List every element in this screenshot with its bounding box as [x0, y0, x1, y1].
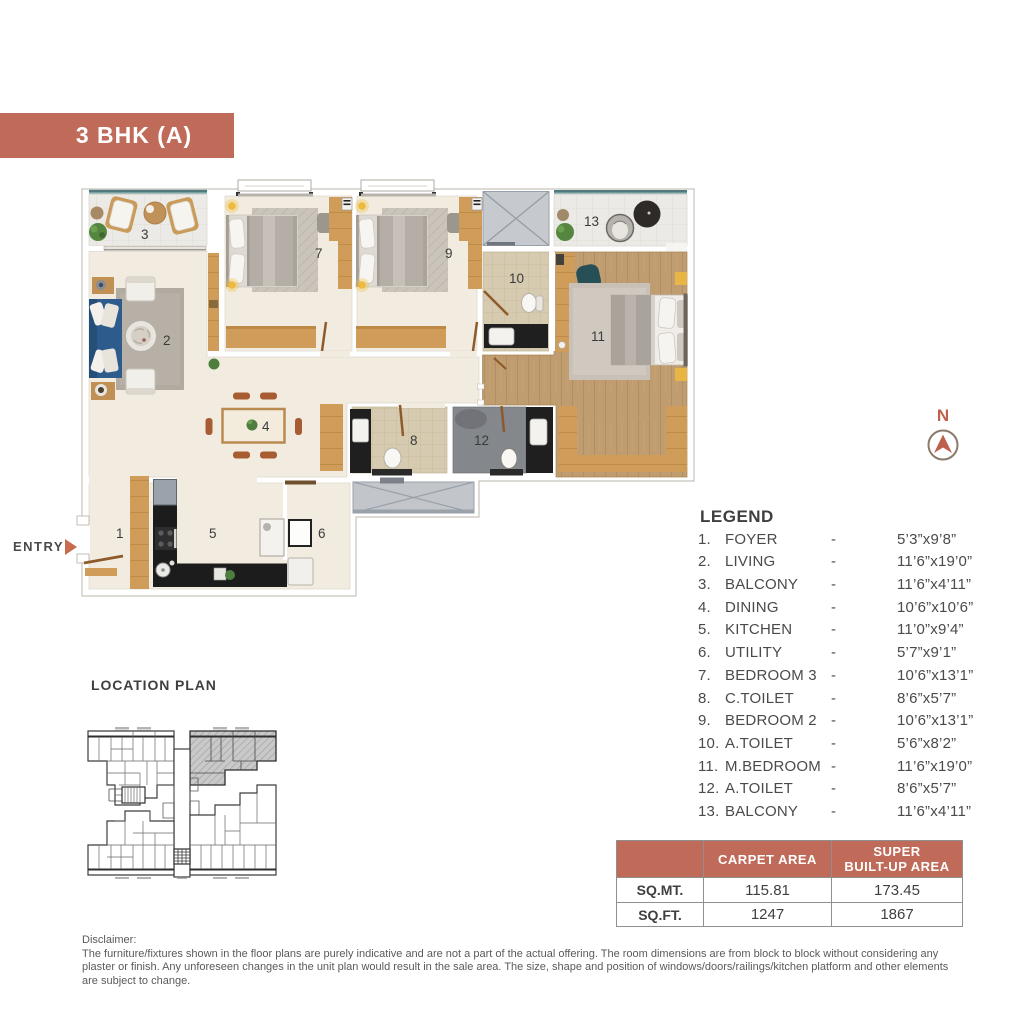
svg-text:2: 2: [163, 333, 171, 348]
svg-text:4: 4: [262, 419, 270, 434]
svg-text:10: 10: [509, 271, 524, 286]
svg-text:5: 5: [209, 526, 217, 541]
svg-text:9: 9: [445, 246, 453, 261]
svg-text:6: 6: [318, 526, 326, 541]
svg-text:3: 3: [141, 227, 149, 242]
svg-text:12: 12: [474, 433, 489, 448]
svg-text:7: 7: [315, 246, 323, 261]
svg-text:13: 13: [584, 214, 599, 229]
svg-text:11: 11: [591, 329, 605, 344]
svg-text:8: 8: [410, 433, 418, 448]
svg-text:1: 1: [116, 526, 124, 541]
